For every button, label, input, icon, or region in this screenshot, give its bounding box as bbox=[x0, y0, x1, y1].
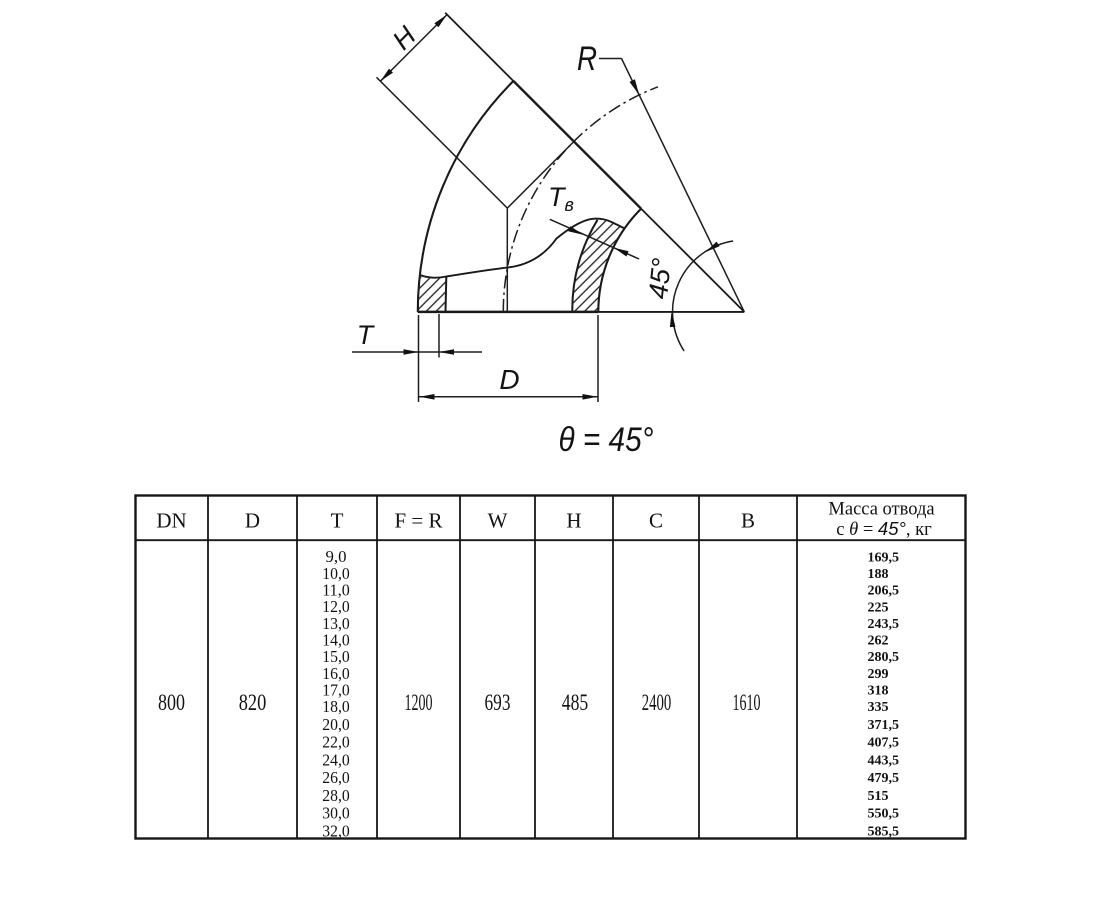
svg-text:F = R: F = R bbox=[394, 509, 442, 533]
svg-text:Масса отвода: Масса отвода bbox=[828, 500, 934, 520]
svg-text:585,5: 585,5 bbox=[868, 824, 900, 839]
svg-text:B: B bbox=[741, 509, 755, 533]
svg-text:18,0: 18,0 bbox=[322, 697, 350, 716]
svg-text:188: 188 bbox=[868, 567, 889, 582]
svg-text:T: T bbox=[357, 320, 376, 350]
svg-text:1200: 1200 bbox=[405, 690, 433, 715]
svg-text:W: W bbox=[488, 509, 508, 533]
svg-text:550,5: 550,5 bbox=[868, 807, 900, 822]
svg-text:206,5: 206,5 bbox=[868, 584, 900, 599]
svg-text:169,5: 169,5 bbox=[868, 550, 900, 565]
svg-text:225: 225 bbox=[868, 600, 889, 615]
svg-text:45°: 45° bbox=[643, 256, 677, 300]
svg-text:C: C bbox=[649, 509, 663, 533]
svg-text:243,5: 243,5 bbox=[868, 617, 900, 632]
svg-text:407,5: 407,5 bbox=[868, 736, 900, 751]
svg-text:1610: 1610 bbox=[733, 690, 761, 715]
svg-text:26,0: 26,0 bbox=[322, 768, 350, 787]
svg-text:318: 318 bbox=[868, 684, 889, 699]
svg-text:DN: DN bbox=[156, 509, 186, 533]
svg-text:с θ = 45°, кг: с θ = 45°, кг bbox=[836, 518, 932, 540]
svg-text:2400: 2400 bbox=[642, 690, 672, 715]
svg-text:20,0: 20,0 bbox=[322, 715, 350, 734]
svg-text:Tв: Tв bbox=[548, 182, 574, 215]
svg-text:800: 800 bbox=[158, 690, 185, 715]
svg-text:335: 335 bbox=[868, 700, 889, 715]
svg-text:T: T bbox=[331, 509, 344, 533]
svg-text:H: H bbox=[387, 20, 422, 55]
svg-text:θ = 45°: θ = 45° bbox=[559, 421, 654, 459]
svg-text:485: 485 bbox=[562, 690, 589, 715]
svg-text:299: 299 bbox=[868, 667, 889, 682]
svg-text:24,0: 24,0 bbox=[322, 750, 350, 769]
svg-text:32,0: 32,0 bbox=[322, 821, 350, 840]
svg-text:693: 693 bbox=[485, 690, 511, 715]
svg-text:280,5: 280,5 bbox=[868, 650, 900, 665]
svg-text:443,5: 443,5 bbox=[868, 753, 900, 768]
svg-text:515: 515 bbox=[868, 789, 889, 804]
svg-text:479,5: 479,5 bbox=[868, 771, 900, 786]
svg-text:30,0: 30,0 bbox=[322, 804, 350, 823]
svg-text:22,0: 22,0 bbox=[322, 733, 350, 752]
svg-text:820: 820 bbox=[239, 690, 267, 715]
svg-text:D: D bbox=[245, 509, 260, 533]
svg-text:262: 262 bbox=[868, 634, 889, 649]
svg-text:371,5: 371,5 bbox=[868, 718, 900, 733]
svg-text:H: H bbox=[566, 509, 581, 533]
svg-text:R: R bbox=[577, 40, 597, 78]
svg-text:D: D bbox=[499, 364, 519, 395]
svg-text:28,0: 28,0 bbox=[322, 786, 350, 805]
